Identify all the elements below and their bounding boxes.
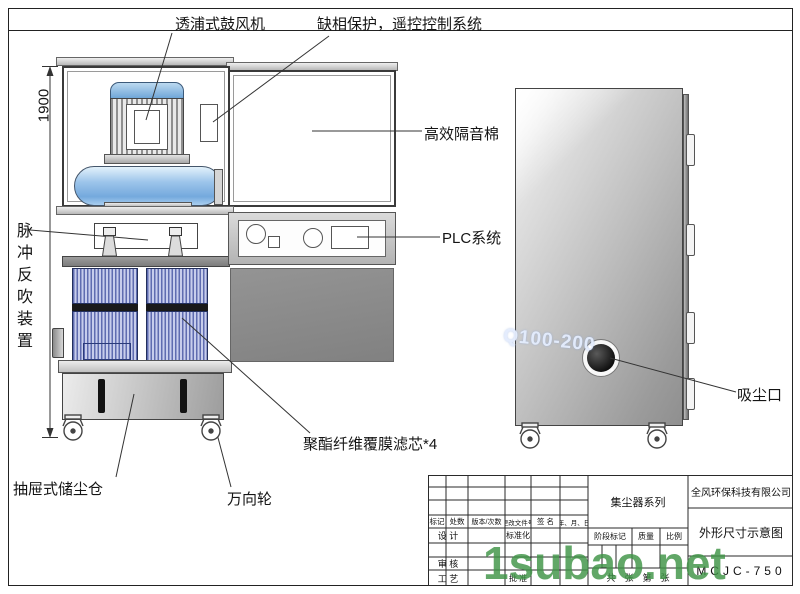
suction-port-label: 吸尘口 (737, 384, 782, 405)
soundproof-label: 高效隔音棉 (424, 123, 499, 144)
tb-header-version: 版本/次数 (468, 515, 505, 528)
drawer-handle-right (180, 379, 187, 413)
cartridge-band-right (146, 304, 208, 311)
tb-header-mark: 标记 (428, 515, 446, 528)
soundproof-chamber (228, 70, 396, 207)
hinge-1 (686, 134, 695, 166)
tb-row-design: 设 计 (428, 528, 468, 543)
mid-cap-bar (56, 206, 234, 215)
drawing-sheet: Q100-200 透浦式鼓风机 缺相保护，遥控控制系统 高效隔音棉 PLC系统 … (0, 0, 800, 594)
fan-scroll-housing (74, 166, 222, 206)
dust-drawer-box (62, 373, 224, 420)
blower-label: 透浦式鼓风机 (175, 13, 265, 34)
motor-window-inner (134, 110, 160, 144)
machine-top-cap (56, 57, 234, 66)
lower-grey-panel (230, 268, 394, 362)
caster-label: 万向轮 (227, 488, 272, 509)
dust-drawer-label: 抽屉式储尘仓 (13, 478, 103, 499)
hinge-4 (686, 378, 695, 410)
inlet-stub (52, 328, 64, 358)
soundproof-chamber-inner-wall (233, 75, 391, 202)
pulse-valve-left (103, 227, 116, 236)
tb-header-change-no: 更改文件号 (505, 515, 531, 528)
phase-protection-label: 缺相保护，遥控控制系统 (317, 13, 482, 34)
hopper-plate (58, 360, 232, 373)
filter-cartridge-4 (146, 311, 208, 361)
tb-header-date: 年、月、日 (560, 515, 588, 528)
drawer-handle-left (98, 379, 105, 413)
tb-header-signature: 签 名 (531, 515, 560, 528)
filter-cartridge-3 (72, 311, 138, 361)
pulse-valve-right (169, 227, 182, 236)
pulse-backblow-label: 脉冲反吹装置 (10, 222, 34, 387)
site-watermark: 1subao.net (483, 536, 726, 590)
plc-button-round (303, 228, 323, 248)
plc-button-large (246, 224, 266, 244)
tube-sheet (62, 256, 230, 267)
title-block-series: 集尘器系列 (588, 475, 688, 528)
title-block-company: 全风环保科技有限公司 (689, 476, 793, 507)
fan-outlet-flange (214, 169, 223, 205)
height-dimension-text: 1900 (36, 84, 53, 128)
filter-cartridge-1 (72, 268, 138, 304)
plc-label: PLC系统 (442, 227, 501, 248)
filter-cartridge-2 (146, 268, 208, 304)
tb-row-process: 工 艺 (428, 570, 468, 586)
plc-switch (268, 236, 280, 248)
tb-row-review: 审 核 (428, 557, 468, 570)
hinge-3 (686, 312, 695, 344)
motor-flange (104, 154, 190, 164)
filter-cartridge-label: 聚酯纤维覆膜滤芯*4 (303, 433, 437, 454)
cartridge-band-left (72, 304, 138, 311)
cartridge-access-door (83, 343, 131, 360)
phase-protection-box (200, 104, 218, 142)
plc-display (331, 226, 369, 249)
tb-header-qty: 处数 (446, 515, 468, 528)
hinge-2 (686, 224, 695, 256)
